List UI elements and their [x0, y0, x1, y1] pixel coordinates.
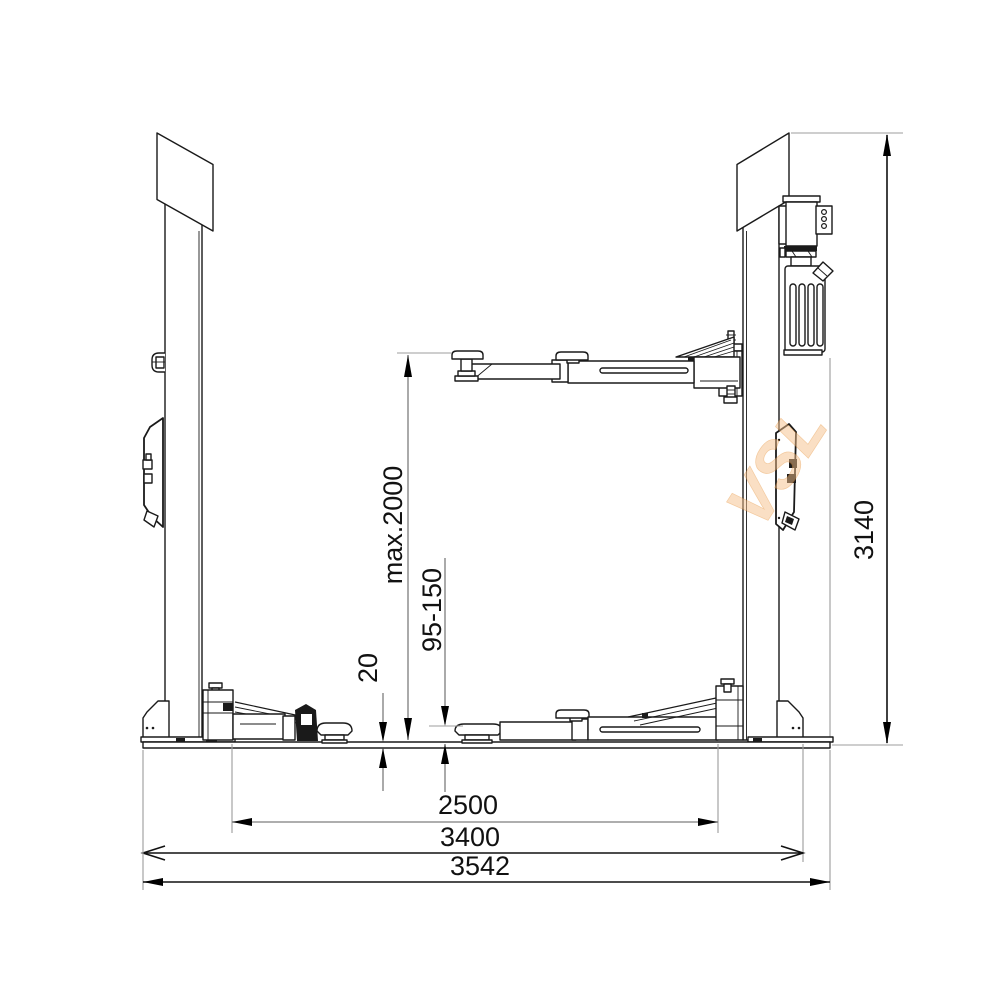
dimension-max-lift-height: max.2000	[378, 353, 452, 740]
pump-neck	[791, 257, 811, 266]
left-post	[141, 133, 235, 742]
technical-drawing-two-post-lift: max.2000 95-150 20 3140 2500	[0, 0, 1000, 1000]
dimension-label-overall-height: 3140	[849, 500, 879, 560]
left-post-side-panel	[143, 418, 163, 527]
dimension-label-base-plate-thickness: 20	[353, 653, 383, 683]
lift-arm-lowered-right	[455, 679, 743, 743]
dimension-label-max-lift-height: max.2000	[378, 466, 408, 585]
carriage-lowered-right	[716, 686, 743, 740]
lift-pad-lowered-left	[317, 723, 352, 743]
motor-top-plate	[783, 196, 820, 202]
watermark-text: VSL	[712, 394, 840, 538]
left-post-column	[165, 196, 202, 740]
drawing-canvas: max.2000 95-150 20 3140 2500	[0, 0, 1000, 1000]
lift-pad-mid-lowered	[556, 710, 589, 718]
dimension-label-post-outer-width: 3400	[440, 822, 500, 852]
dimension-label-pad-height-range: 95-150	[417, 568, 447, 652]
watermark-logo: VSL	[712, 394, 840, 538]
reservoir-base-plate	[784, 350, 822, 355]
arm-telescope-inner	[468, 364, 560, 379]
lift-pad-lowered-right	[455, 724, 502, 743]
dimension-label-clear-width: 2500	[438, 790, 498, 820]
lift-arm-raised	[452, 331, 742, 403]
electric-motor	[786, 202, 817, 246]
hydraulic-power-unit	[779, 196, 833, 355]
dimension-base-plate-thickness: 20	[353, 653, 387, 791]
left-post-latch-knob	[152, 353, 165, 372]
carriage-lowered-left	[203, 690, 233, 740]
dimension-clear-width: 2500	[232, 744, 718, 833]
motor-flange	[784, 246, 817, 251]
control-box	[816, 206, 832, 234]
lift-arm-lowered-left	[203, 683, 352, 743]
dimension-pad-height-range: 95-150	[417, 558, 463, 792]
dimension-label-overall-width: 3542	[450, 851, 510, 881]
